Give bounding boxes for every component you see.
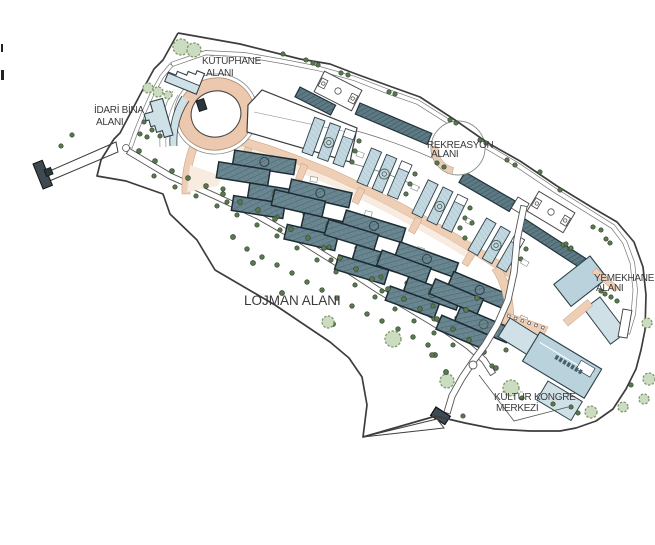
svg-text:KÜLTÜR KONGRE: KÜLTÜR KONGRE [494,391,576,403]
svg-text:ALANI: ALANI [431,149,458,160]
svg-text:İDARİ BİNA: İDARİ BİNA [94,103,144,116]
svg-text:KÜTÜPHANE: KÜTÜPHANE [202,55,262,67]
svg-text:ALANI: ALANI [206,68,233,79]
svg-text:ALANI: ALANI [596,283,623,294]
svg-text:ALANI: ALANI [96,117,123,128]
svg-text:LOJMAN ALANI: LOJMAN ALANI [244,293,341,308]
svg-text:MERKEZİ: MERKEZİ [496,401,538,414]
